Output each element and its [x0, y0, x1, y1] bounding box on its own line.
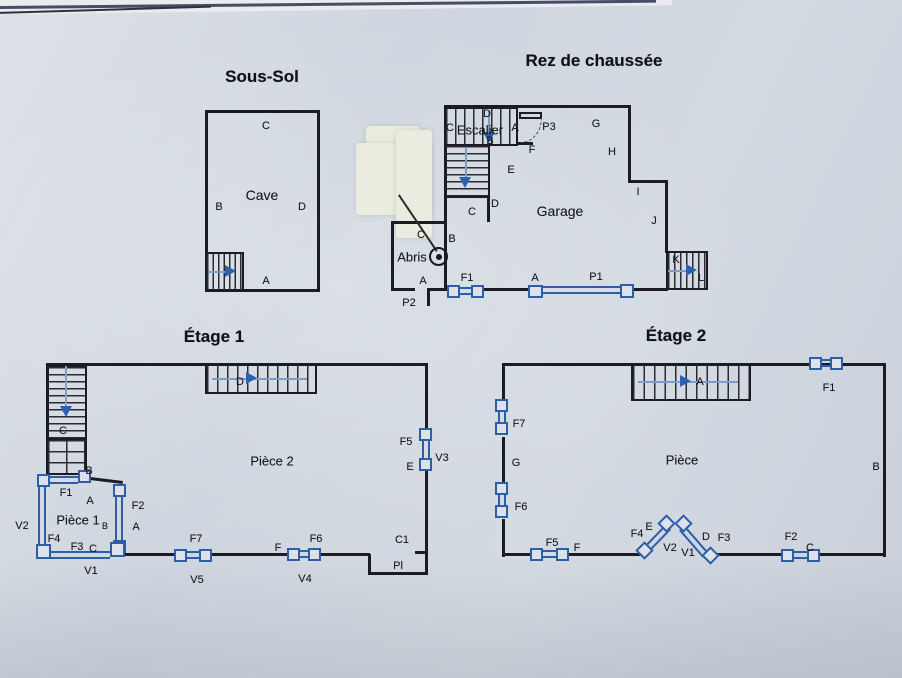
wall — [883, 363, 886, 557]
wall — [665, 180, 668, 253]
window-f1 — [809, 357, 822, 370]
door-p2-label: P2 — [402, 297, 415, 309]
stair-arrow-icon — [60, 406, 72, 417]
wall-g: G — [512, 457, 521, 469]
wall-a-right: A — [132, 521, 139, 533]
cave-wall-b: B — [215, 201, 222, 213]
window-f1 — [447, 285, 460, 298]
window-f6-label: F6 — [515, 501, 528, 513]
escalier-wall-b: B — [486, 135, 493, 147]
stair-k-label: K — [672, 254, 679, 266]
piece1-corner — [110, 542, 125, 557]
window-f5 — [419, 428, 432, 441]
window-f1-glazing — [821, 359, 830, 367]
etage2-title: Étage 2 — [646, 326, 706, 346]
garage-room-label: Garage — [537, 203, 584, 219]
wall — [712, 553, 783, 556]
closet-c1-label: C1 — [395, 534, 409, 546]
wall — [481, 288, 530, 291]
inner-wall-c: C — [468, 206, 476, 218]
wall-e: E — [645, 521, 652, 533]
shutter-v1-label: V1 — [681, 547, 694, 559]
window-f4-label: F4 — [48, 533, 61, 545]
shutter-v2-label: V2 — [15, 520, 28, 532]
window-v2-glazing — [38, 487, 46, 544]
sous-sol-title: Sous-Sol — [225, 67, 299, 87]
stair-d-label: D — [236, 376, 244, 388]
piece1-corner — [113, 484, 126, 497]
door-a-label: A — [531, 272, 538, 284]
wall — [425, 471, 428, 575]
window-f7-glazing — [186, 551, 199, 559]
wall-h: H — [608, 146, 616, 158]
wall-f: F — [529, 144, 536, 156]
door-p1-label: P1 — [589, 271, 602, 283]
cave-room-label: Cave — [246, 187, 279, 203]
window-f1-glazing — [459, 287, 471, 295]
stair-walk-line — [668, 270, 688, 272]
boiler-circle-dot — [436, 254, 442, 260]
etage1-title: Étage 1 — [184, 327, 244, 347]
abris-wall — [429, 288, 445, 291]
wall-c: C — [89, 543, 97, 555]
wall-d: D — [702, 531, 710, 543]
window-f1-label: F1 — [60, 487, 73, 499]
stair-walk-line — [465, 147, 467, 179]
window-f1 — [471, 285, 484, 298]
shutter-v4-label: V4 — [298, 573, 311, 585]
closet-pl-label: Pl — [393, 560, 403, 572]
shutter-v1-label: V1 — [84, 565, 97, 577]
escalier-wall-d: D — [483, 108, 491, 120]
window-f6 — [308, 548, 321, 561]
window-f7-label: F7 — [190, 533, 203, 545]
wall — [502, 519, 505, 557]
window-f6 — [495, 482, 508, 495]
window-f5-glazing — [542, 550, 556, 558]
window-f7 — [174, 549, 187, 562]
cave-wall-c: C — [262, 120, 270, 132]
wall — [502, 437, 505, 482]
wall-a-top: A — [86, 495, 93, 507]
window-f7-glazing — [498, 411, 506, 422]
wall — [502, 363, 505, 399]
cave-wall-a: A — [262, 275, 269, 287]
wall — [90, 477, 123, 484]
wall-j: J — [651, 215, 657, 227]
wall — [630, 288, 668, 291]
shutter-v3-label: V3 — [435, 452, 448, 464]
piece-room-label: Pièce — [666, 453, 699, 468]
stair-arrow-icon — [459, 177, 471, 188]
window-f7 — [199, 549, 212, 562]
wall — [502, 553, 532, 556]
window-f6-glazing — [299, 550, 308, 558]
door-p3-swing-arc — [521, 118, 542, 143]
window-f2-label: F2 — [785, 531, 798, 543]
stair-arrow-icon — [225, 265, 236, 277]
abris-wall — [391, 288, 415, 291]
stair-l-label: L — [698, 272, 704, 284]
window-f5-label: F5 — [546, 537, 559, 549]
door-p3-label: P3 — [542, 121, 555, 133]
wall — [425, 363, 428, 429]
window-f5 — [419, 458, 432, 471]
window-f2 — [781, 549, 794, 562]
wall-b: B — [85, 465, 92, 477]
shutter-v2-label: V2 — [663, 542, 676, 554]
wall-b: B — [872, 461, 879, 473]
escalier-lower-run — [444, 144, 490, 198]
cave-wall-d: D — [298, 201, 306, 213]
door-p2-leaf — [427, 288, 430, 306]
stair-walk-line — [212, 378, 307, 380]
abris-wall-a: A — [419, 275, 426, 287]
wall — [125, 553, 176, 556]
escalier-label: Escalier — [457, 123, 503, 138]
escalier-wall-a: A — [511, 122, 518, 134]
wall — [321, 553, 370, 556]
stair-arrow-icon — [680, 375, 691, 387]
window-f7-label: F7 — [513, 418, 526, 430]
shutter-v5-label: V5 — [190, 574, 203, 586]
dormer-corner — [674, 514, 692, 532]
wall — [369, 572, 428, 575]
window-f5-glazing — [422, 441, 430, 458]
piece1-room-label: Pièce 1 — [56, 513, 99, 528]
stair-walk-line — [65, 366, 67, 408]
wall-i: I — [636, 186, 639, 198]
escalier-wall-c: C — [446, 122, 454, 134]
inner-wall-d: D — [491, 198, 499, 210]
inner-wall — [415, 551, 428, 554]
wall-e: E — [507, 164, 514, 176]
wall-f: F — [574, 542, 581, 554]
garage-door-p1-end — [620, 284, 634, 298]
floor-plan-photo: Sous-Sol C Cave B D A Rez de chaussée Es… — [0, 0, 902, 678]
window-f7 — [495, 422, 508, 435]
wall-e: E — [406, 461, 413, 473]
window-f3-label: F3 — [71, 541, 84, 553]
rez-title: Rez de chaussée — [525, 51, 662, 71]
garage-door-p1 — [542, 286, 622, 294]
window-f7 — [495, 399, 508, 412]
window-f1 — [830, 357, 843, 370]
piece2-room-label: Pièce 2 — [250, 454, 293, 469]
stair-arrow-icon — [246, 372, 257, 384]
window-f1-glazing — [49, 476, 78, 484]
piece1-sub-label: B — [102, 521, 108, 531]
wall — [820, 553, 886, 556]
window-f2-glazing — [115, 496, 123, 540]
window-f1-label: F1 — [461, 272, 474, 284]
wall-f: F — [275, 542, 282, 554]
wall — [368, 554, 371, 575]
stair-c-label: C — [59, 425, 67, 437]
window-f2-glazing — [793, 551, 807, 559]
wall-c: C — [806, 542, 814, 554]
window-f4-label: F4 — [631, 528, 644, 540]
abris-wall — [391, 221, 394, 291]
abris-wall-c: C — [417, 229, 425, 241]
window-f1-label: F1 — [823, 382, 836, 394]
window-f5 — [556, 548, 569, 561]
stair-arrow-icon — [686, 264, 697, 276]
wall — [628, 105, 631, 183]
stair-a-label: A — [696, 376, 703, 388]
piece1-corner — [37, 474, 50, 487]
wall-g: G — [592, 118, 601, 130]
window-f3-label: F3 — [718, 532, 731, 544]
window-f5-label: F5 — [400, 436, 413, 448]
door-a — [528, 285, 543, 298]
wall-b: B — [448, 233, 455, 245]
window-f6-glazing — [498, 494, 506, 505]
window-f6 — [287, 548, 300, 561]
abris-room-label: Abris — [397, 250, 427, 265]
piece1-corner — [36, 544, 51, 559]
window-f6 — [495, 505, 508, 518]
window-f5 — [530, 548, 543, 561]
wall — [628, 180, 668, 183]
window-f6-label: F6 — [310, 533, 323, 545]
inner-wall — [487, 196, 490, 222]
window-f2-label: F2 — [132, 500, 145, 512]
